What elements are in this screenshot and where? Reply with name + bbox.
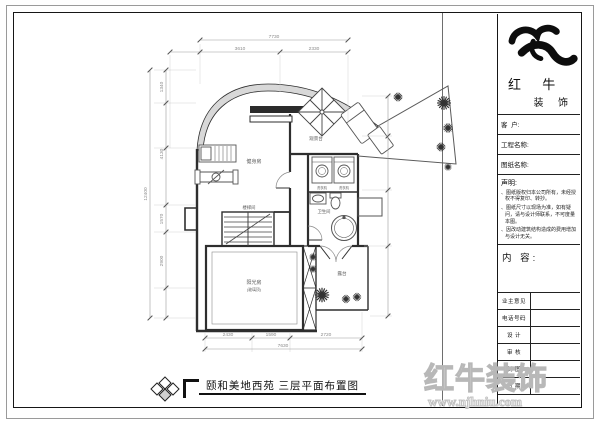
dim-bottom-overall: 7630	[278, 343, 289, 349]
sign-row-value	[531, 293, 580, 309]
washer-caption: 洗衣机	[339, 185, 350, 190]
ornament-logo	[148, 376, 182, 406]
dimension-right	[386, 94, 391, 319]
statement-item: 图纸版权归本公司所有，未经授权不得复印、转抄。	[501, 190, 578, 204]
field-label: 工程名称:	[498, 139, 529, 149]
sign-row-label: 电话号码	[498, 310, 531, 326]
sign-row-value	[531, 327, 580, 343]
dim-top-seg: 3610	[235, 46, 246, 52]
sign-row-label: 业主意见	[498, 293, 531, 309]
window-mullion-column	[303, 246, 316, 330]
washer-caption: 洗衣机	[317, 185, 328, 190]
dim-left-seg: 4130	[159, 148, 165, 159]
room-label-bath: 卫生间	[318, 208, 331, 215]
sign-row-label: 制 图	[498, 361, 531, 377]
sink-icon	[313, 195, 324, 202]
brand-subname: 装 饰	[498, 94, 580, 109]
sign-row-drafter: 制 图	[498, 360, 580, 377]
bull-logo-icon	[499, 18, 579, 76]
title-block: 红 牛 装 饰 客 户: 工程名称: 图纸名称: 声明: 图纸版权归本公司所有，…	[497, 14, 580, 405]
lounge-chair-icon	[341, 102, 394, 154]
room-label-sunroom: 阳光房	[246, 279, 261, 286]
dim-top-overall: 7730	[269, 34, 280, 40]
dimension-top	[168, 38, 351, 55]
toilet-icon	[331, 197, 340, 209]
room-label-sunroom-note: (玻璃顶)	[247, 287, 262, 292]
sign-row-value	[531, 310, 580, 326]
dim-left-seg: 1340	[159, 81, 165, 92]
dim-left-seg: 2900	[159, 255, 165, 266]
gym-equipment-icon	[195, 145, 238, 184]
dim-left-seg: 1570	[159, 213, 165, 224]
room-label-gym: 健身房	[246, 158, 261, 165]
sign-row-phone: 电话号码	[498, 309, 580, 326]
dim-top-seg: 2330	[309, 46, 320, 52]
dim-bottom-seg: 2720	[321, 332, 332, 338]
content-section: 内 容:	[498, 244, 580, 292]
dim-bottom-seg: 1590	[266, 332, 277, 338]
room-label-stairs: 楼梯间	[243, 204, 256, 211]
sign-row-date: 日 期	[498, 377, 580, 394]
room-label-terrace-bottom: 露台	[337, 270, 347, 277]
sign-row-label: 审 核	[498, 344, 531, 360]
sign-row-designer: 设 计	[498, 326, 580, 343]
title-underline	[199, 393, 366, 395]
sign-row-value	[531, 361, 580, 377]
drawing-sheet: 健身房 楼梯间 卫生间 洗衣机 洗衣机 观景台 露台 阳光房 (玻璃顶)	[0, 0, 600, 424]
dim-left-overall: 12400	[143, 187, 149, 201]
title-block-footer	[498, 394, 580, 405]
dimension-left	[148, 68, 169, 321]
field-label: 图纸名称:	[498, 159, 529, 169]
drawing-title: 颐和美地西苑 三层平面布置图	[200, 378, 365, 393]
sign-row-label: 日 期	[498, 378, 531, 394]
statement-section: 声明: 图纸版权归本公司所有，未经授权不得复印、转抄。 图纸尺寸以现场为准，如有…	[498, 174, 580, 244]
field-drawing-name: 图纸名称:	[498, 154, 580, 174]
brand-name: 红 牛	[498, 74, 580, 93]
sign-row-reviewer: 审 核	[498, 343, 580, 360]
field-label: 客 户:	[498, 119, 519, 129]
company-logo: 红 牛 装 饰	[498, 14, 580, 114]
sign-row-value	[531, 344, 580, 360]
stairs	[224, 212, 272, 246]
field-customer: 客 户:	[498, 114, 580, 134]
dim-bottom-seg: 2430	[223, 332, 234, 338]
sign-row-value	[531, 378, 580, 394]
dimensions: 7730 3610 2330 12400 1340 4130 1570 2900…	[143, 34, 392, 352]
sign-row-owner-opinion: 业主意见	[498, 292, 580, 309]
title-bracket	[183, 379, 186, 398]
content-label: 内 容:	[502, 253, 538, 264]
statement-title: 声明:	[501, 178, 578, 188]
room-label-terrace-top: 观景台	[309, 135, 323, 142]
sign-row-label: 设 计	[498, 327, 531, 343]
washing-machine-icons	[312, 157, 354, 183]
bathroom-fixtures	[310, 193, 357, 241]
field-project-name: 工程名称:	[498, 134, 580, 154]
statement-item: 图纸尺寸以现场为准，如有疑问，请与设计师联系，不可度量本图。	[501, 205, 578, 225]
statement-item: 因改动建筑结构造成的费用增加与设计无关。	[501, 227, 578, 241]
